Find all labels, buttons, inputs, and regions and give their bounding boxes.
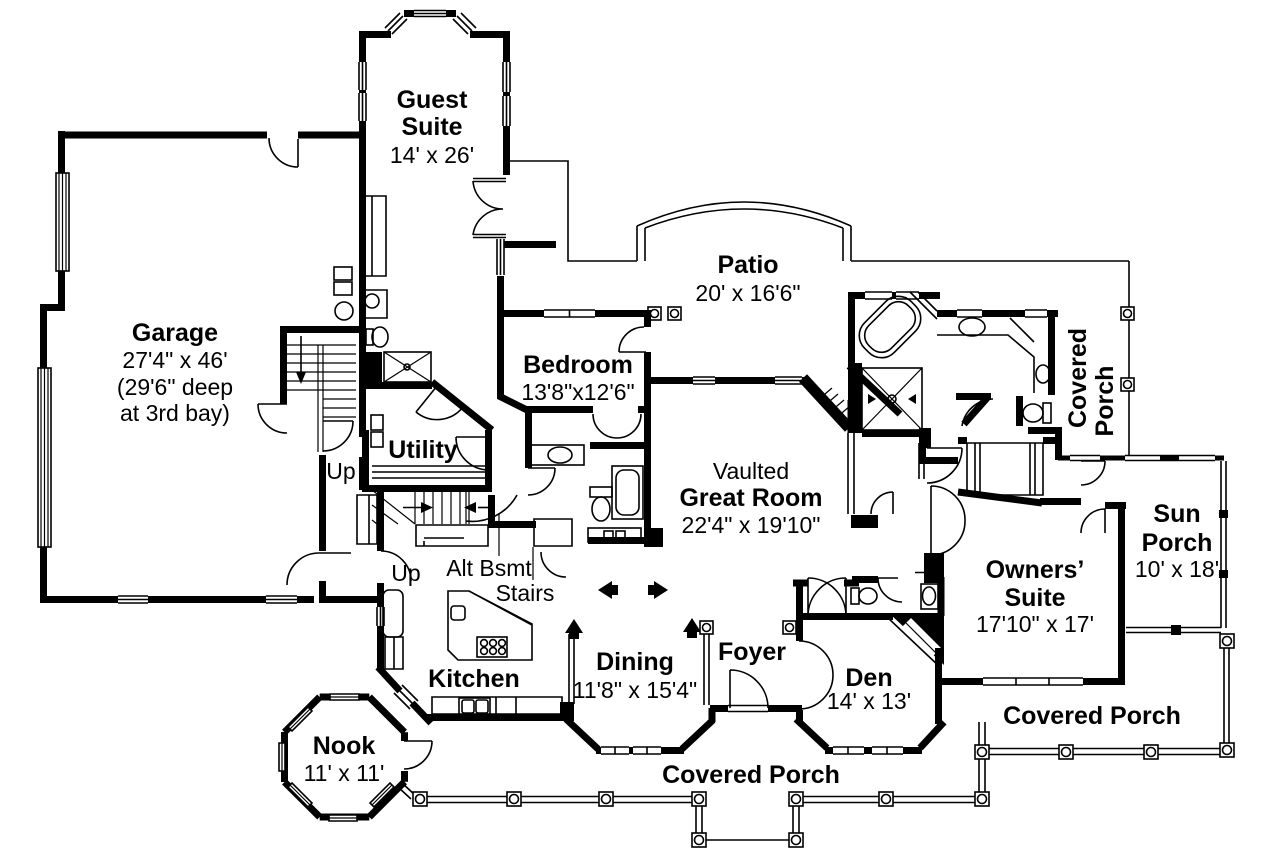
svg-text:14' x 13': 14' x 13' — [827, 688, 911, 714]
svg-text:Nook: Nook — [313, 732, 376, 760]
svg-text:17'10" x 17': 17'10" x 17' — [976, 611, 1094, 637]
svg-text:Dining: Dining — [596, 648, 674, 676]
svg-text:Garage: Garage — [132, 319, 218, 347]
svg-text:Up: Up — [391, 560, 420, 586]
svg-text:Porch: Porch — [1091, 366, 1119, 437]
svg-text:Great Room: Great Room — [679, 484, 822, 512]
svg-text:Suite: Suite — [401, 113, 462, 141]
svg-text:Stairs: Stairs — [496, 580, 555, 606]
svg-text:14' x 26': 14' x 26' — [390, 142, 474, 168]
svg-text:at 3rd bay): at 3rd bay) — [120, 400, 230, 426]
svg-text:10' x 18': 10' x 18' — [1135, 556, 1219, 582]
svg-text:20' x 16'6": 20' x 16'6" — [695, 280, 800, 306]
svg-text:Up: Up — [326, 458, 355, 484]
svg-text:Covered Porch: Covered Porch — [662, 761, 840, 789]
svg-text:Kitchen: Kitchen — [428, 665, 520, 693]
svg-text:Sun: Sun — [1153, 500, 1200, 528]
svg-text:Suite: Suite — [1004, 584, 1065, 612]
svg-text:Covered Porch: Covered Porch — [1003, 702, 1181, 730]
svg-text:Vaulted: Vaulted — [713, 458, 789, 484]
svg-text:Covered: Covered — [1064, 328, 1092, 428]
svg-text:Porch: Porch — [1142, 529, 1213, 557]
svg-text:Foyer: Foyer — [718, 638, 786, 666]
svg-text:13'8"x12'6": 13'8"x12'6" — [521, 379, 634, 405]
svg-text:11' x 11': 11' x 11' — [304, 760, 385, 786]
svg-text:(29'6" deep: (29'6" deep — [117, 374, 233, 400]
svg-text:27'4" x 46': 27'4" x 46' — [122, 347, 227, 373]
svg-text:Owners’: Owners’ — [986, 556, 1085, 584]
svg-text:Utility: Utility — [388, 436, 458, 464]
svg-text:Bedroom: Bedroom — [523, 351, 633, 379]
svg-text:Patio: Patio — [717, 251, 778, 279]
svg-text:Alt Bsmt: Alt Bsmt — [446, 555, 532, 581]
svg-text:Guest: Guest — [397, 86, 469, 114]
svg-text:11'8" x 15'4": 11'8" x 15'4" — [573, 677, 697, 703]
svg-text:22'4" x 19'10": 22'4" x 19'10" — [682, 512, 821, 538]
